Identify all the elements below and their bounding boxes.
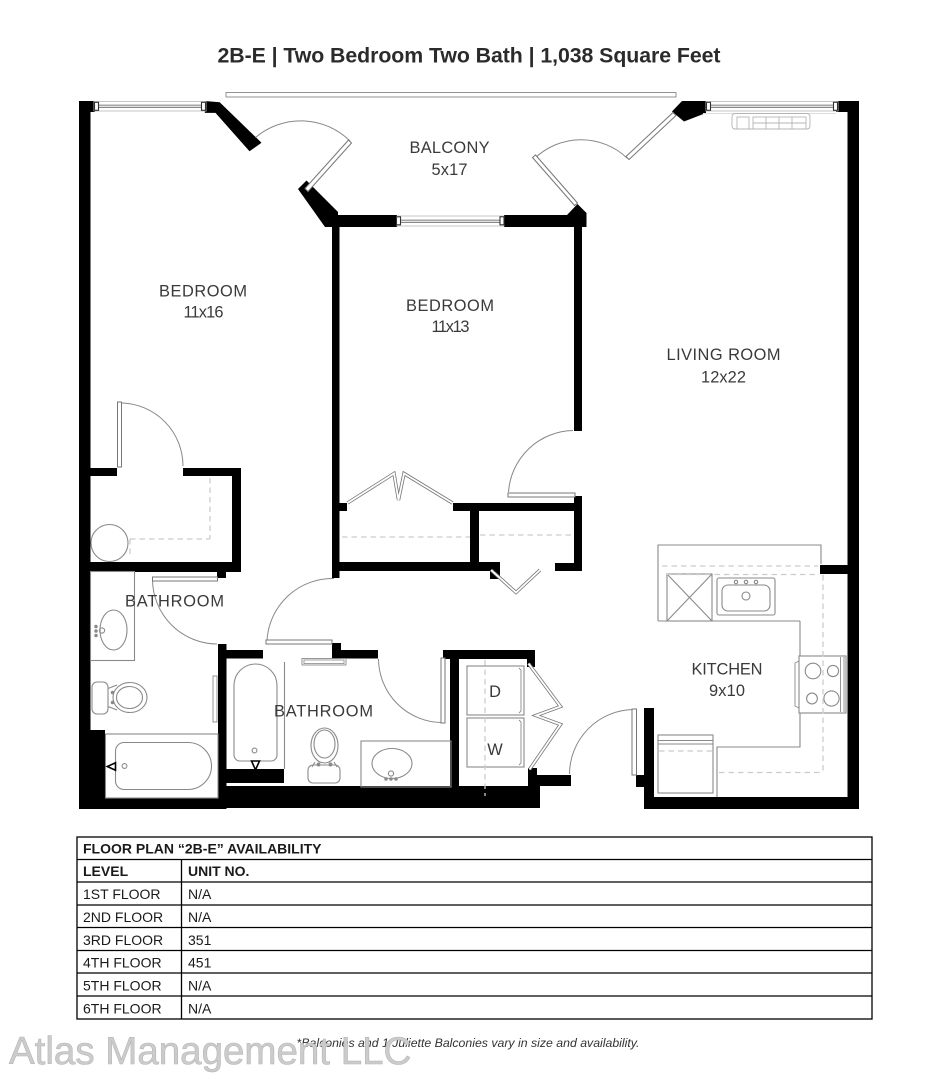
svg-text:Atlas Management LLC: Atlas Management LLC xyxy=(9,1030,411,1073)
svg-text:BALCONY: BALCONY xyxy=(410,139,490,157)
svg-text:BEDROOM: BEDROOM xyxy=(406,297,494,315)
svg-text:UNIT NO.: UNIT NO. xyxy=(188,863,249,879)
svg-text:FLOOR PLAN “2B-E” AVAILABILITY: FLOOR PLAN “2B-E” AVAILABILITY xyxy=(83,841,322,857)
svg-text:W: W xyxy=(487,741,503,759)
svg-text:3RD FLOOR: 3RD FLOOR xyxy=(83,932,163,948)
svg-text:11x16: 11x16 xyxy=(184,304,224,322)
svg-text:N/A: N/A xyxy=(188,1001,212,1017)
svg-text:11x13: 11x13 xyxy=(432,318,470,336)
svg-text:N/A: N/A xyxy=(188,909,212,925)
svg-text:BATHROOM: BATHROOM xyxy=(274,703,373,721)
svg-text:BATHROOM: BATHROOM xyxy=(125,593,224,611)
svg-text:4TH FLOOR: 4TH FLOOR xyxy=(83,955,162,971)
svg-text:D: D xyxy=(489,683,501,701)
svg-text:12x22: 12x22 xyxy=(701,369,746,387)
svg-text:1ST FLOOR: 1ST FLOOR xyxy=(83,886,161,902)
svg-text:2B-E | Two Bedroom Two Bath |: 2B-E | Two Bedroom Two Bath | 1,038 Squa… xyxy=(218,44,721,68)
svg-text:LEVEL: LEVEL xyxy=(83,863,129,879)
svg-text:9x10: 9x10 xyxy=(709,682,745,700)
svg-text:6TH FLOOR: 6TH FLOOR xyxy=(83,1001,162,1017)
svg-text:2ND FLOOR: 2ND FLOOR xyxy=(83,909,163,925)
svg-text:351: 351 xyxy=(188,932,212,948)
svg-text:LIVING ROOM: LIVING ROOM xyxy=(667,346,781,364)
svg-text:N/A: N/A xyxy=(188,978,212,994)
svg-text:451: 451 xyxy=(188,955,212,971)
svg-text:N/A: N/A xyxy=(188,886,212,902)
svg-text:BEDROOM: BEDROOM xyxy=(159,283,247,301)
svg-text:5TH FLOOR: 5TH FLOOR xyxy=(83,978,162,994)
svg-text:KITCHEN: KITCHEN xyxy=(692,661,763,679)
svg-text:5x17: 5x17 xyxy=(432,161,468,179)
